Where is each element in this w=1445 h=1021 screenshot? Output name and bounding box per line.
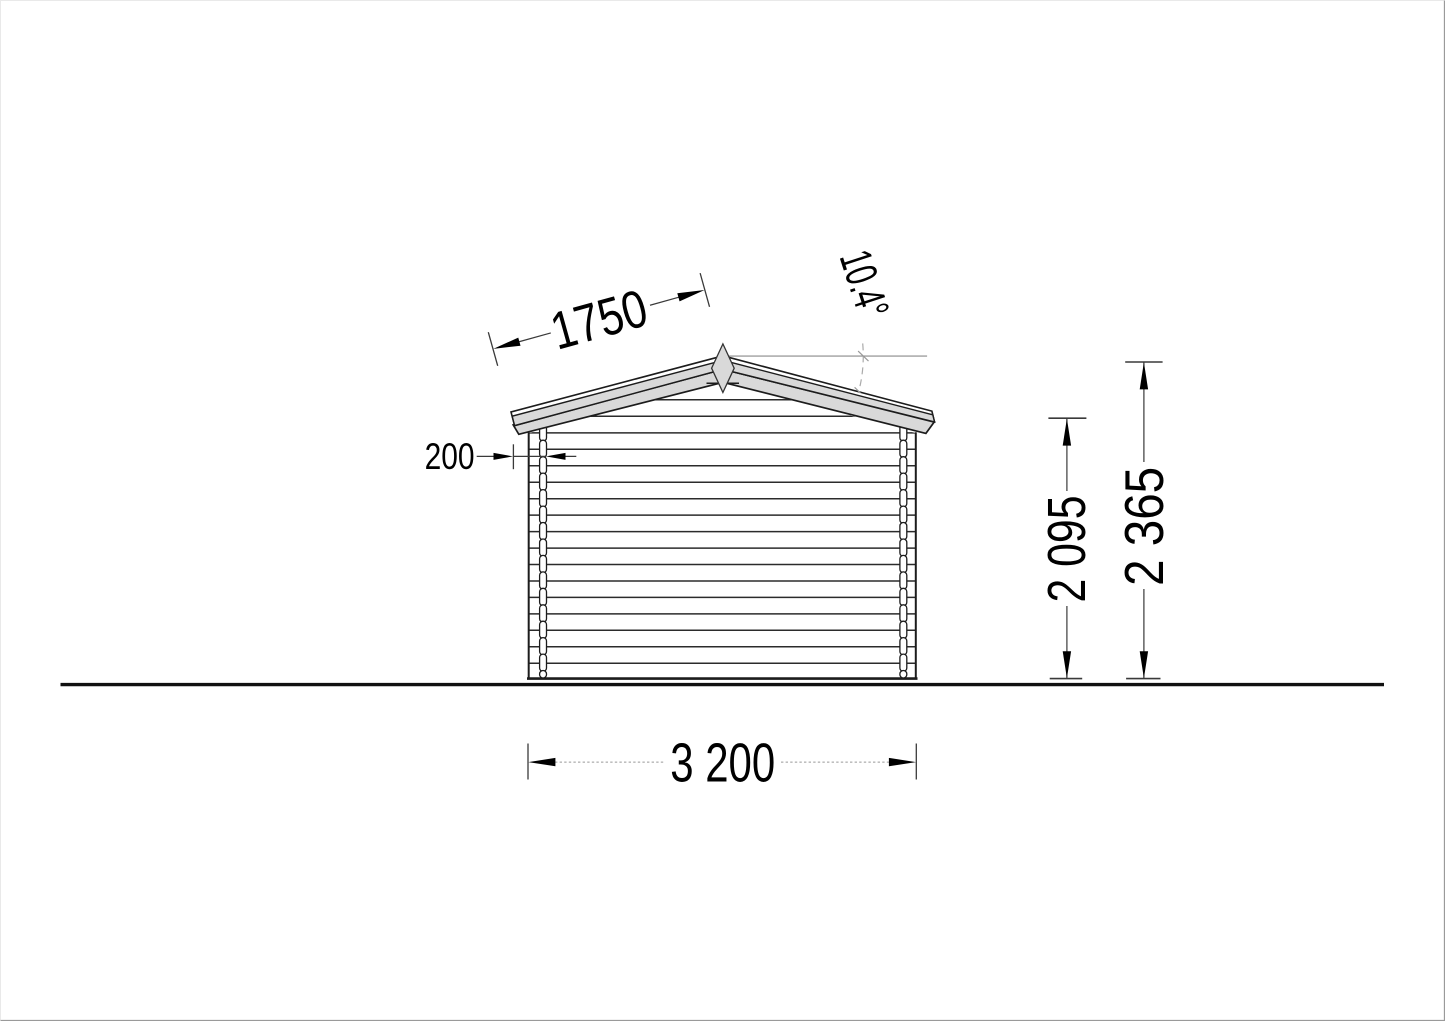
svg-text:3 200: 3 200 (670, 732, 775, 794)
svg-text:2 095: 2 095 (1037, 496, 1097, 603)
svg-text:2 365: 2 365 (1113, 467, 1175, 586)
svg-text:200: 200 (425, 436, 475, 477)
